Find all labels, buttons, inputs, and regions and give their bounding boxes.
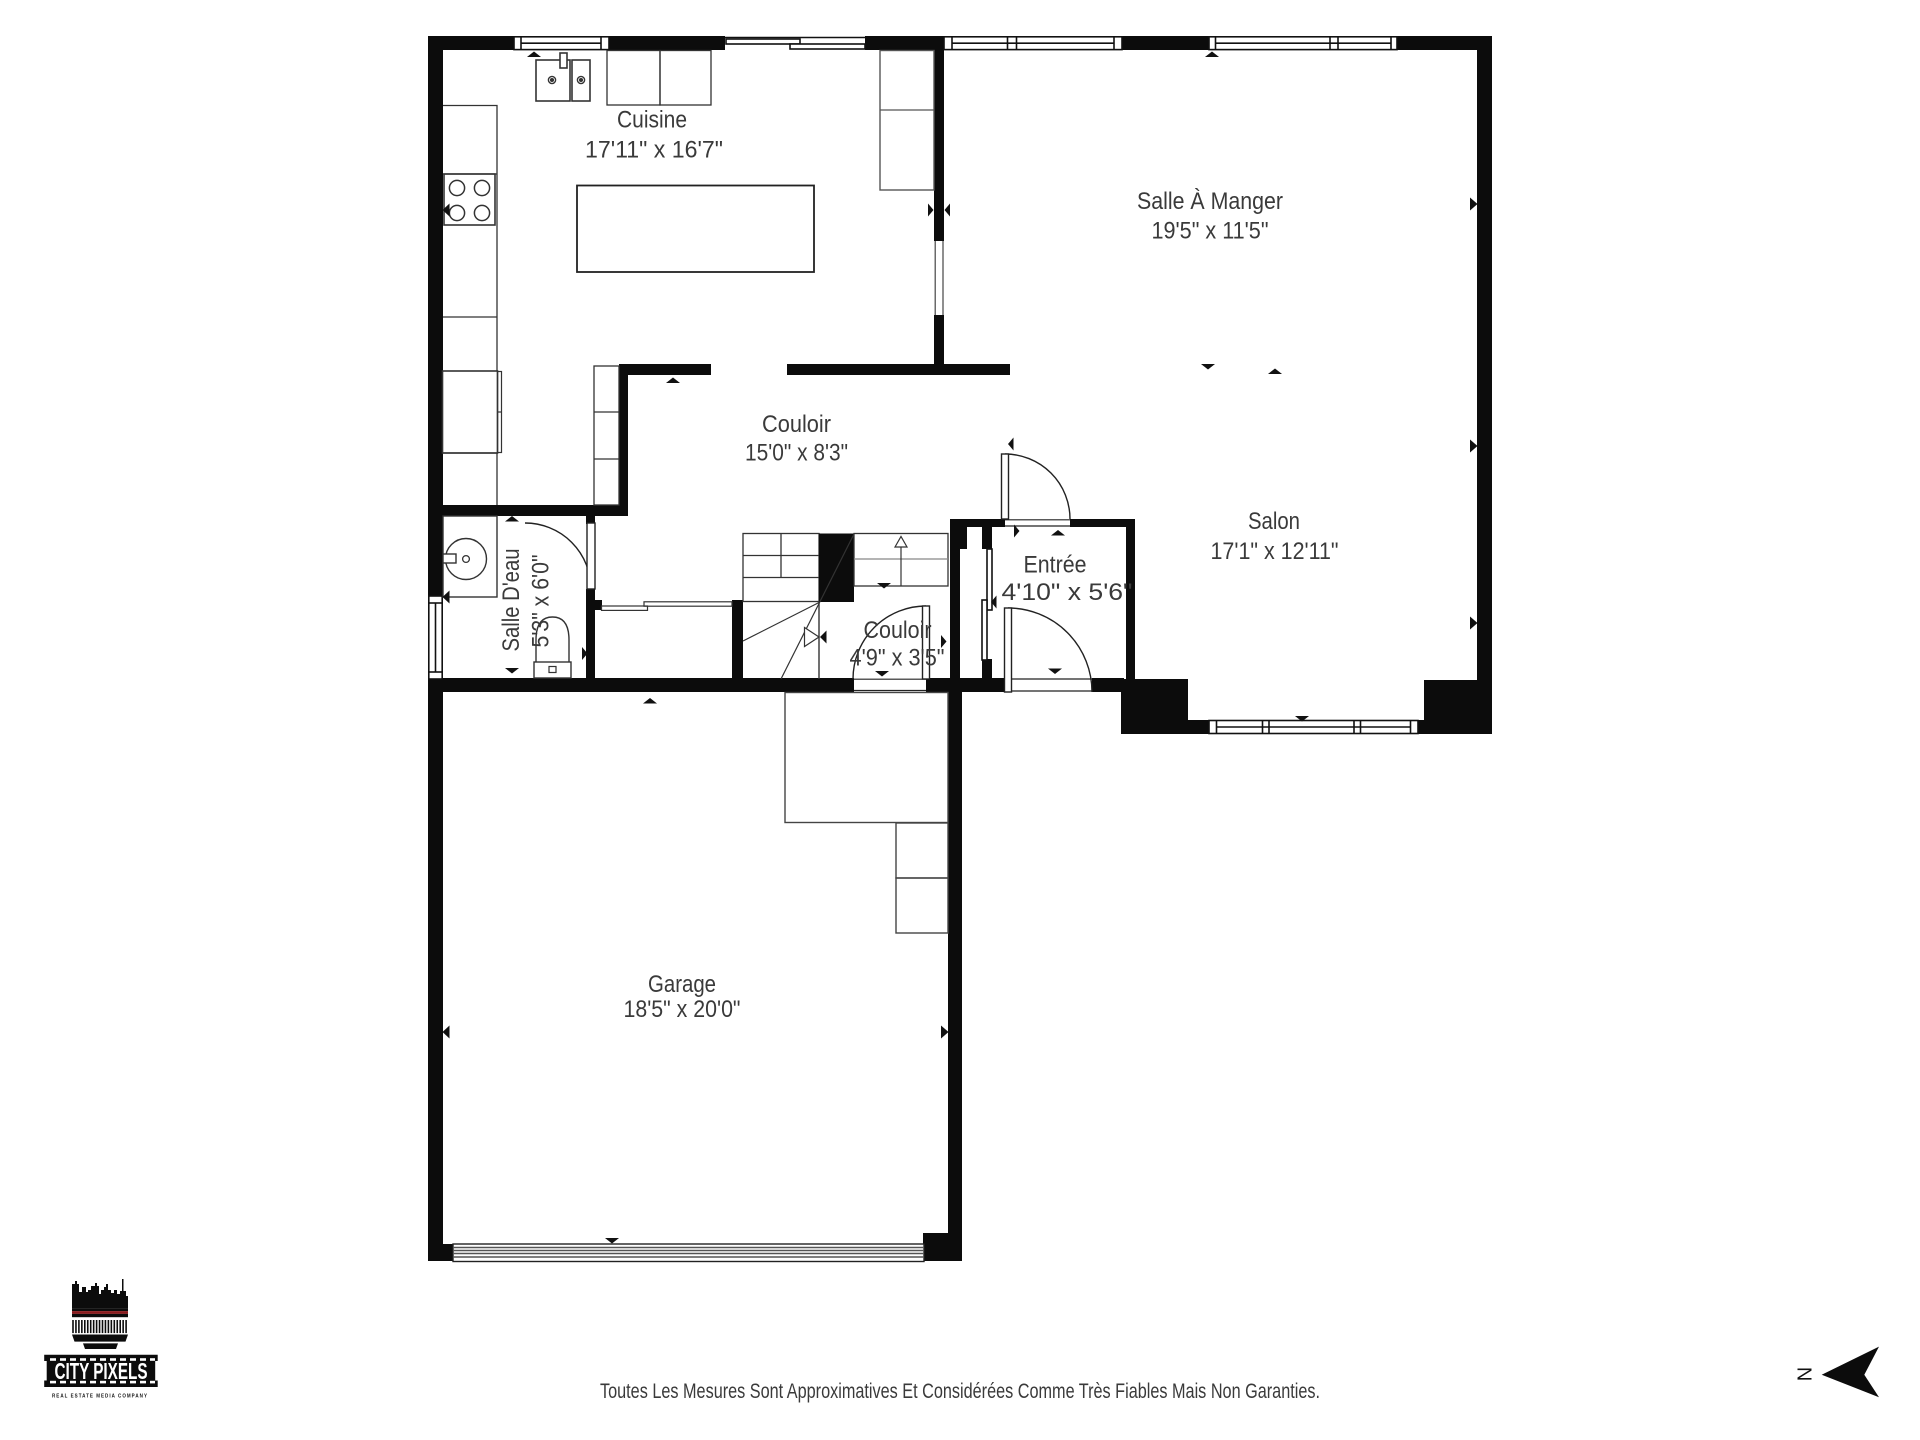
svg-text:Toutes Les Mesures Sont Approx: Toutes Les Mesures Sont Approximatives E…: [600, 1379, 1320, 1403]
svg-text:Garage: Garage: [648, 971, 716, 998]
svg-text:15'0" x 8'3": 15'0" x 8'3": [745, 440, 848, 467]
svg-text:REAL ESTATE MEDIA COMPANY: REAL ESTATE MEDIA COMPANY: [52, 1394, 148, 1400]
svg-text:18'5" x 20'0": 18'5" x 20'0": [624, 996, 741, 1023]
svg-text:4'10" x 5'6": 4'10" x 5'6": [1002, 579, 1133, 606]
svg-text:17'11" x 16'7": 17'11" x 16'7": [585, 137, 723, 164]
svg-text:4'9" x 3'5": 4'9" x 3'5": [850, 645, 945, 672]
svg-text:5'3" x 6'0": 5'3" x 6'0": [527, 555, 554, 648]
svg-text:N: N: [1794, 1367, 1816, 1381]
svg-text:19'5" x 11'5": 19'5" x 11'5": [1152, 218, 1269, 245]
svg-text:CITY PIXELS: CITY PIXELS: [55, 1358, 148, 1384]
svg-text:Salle D'eau: Salle D'eau: [498, 549, 525, 652]
svg-text:Salon: Salon: [1248, 508, 1300, 535]
svg-text:Salle À Manger: Salle À Manger: [1137, 188, 1283, 215]
svg-text:Couloir: Couloir: [864, 617, 932, 644]
svg-text:Entrée: Entrée: [1024, 552, 1087, 579]
svg-text:17'1" x 12'11": 17'1" x 12'11": [1211, 538, 1339, 565]
svg-text:Cuisine: Cuisine: [617, 107, 687, 134]
svg-text:Couloir: Couloir: [762, 411, 831, 438]
